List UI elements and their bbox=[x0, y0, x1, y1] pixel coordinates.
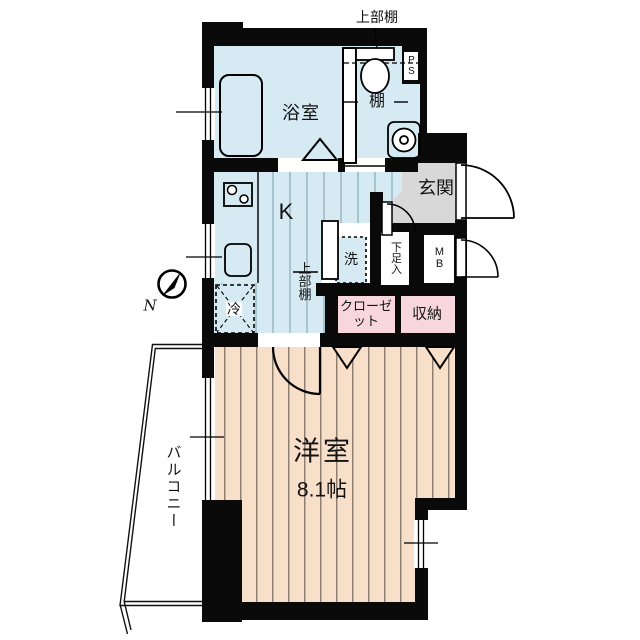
storage-label: 収納 bbox=[412, 307, 442, 322]
balcony-label: バルコニー bbox=[166, 445, 181, 530]
compass-icon bbox=[159, 271, 186, 298]
meter-box-label: MB bbox=[434, 246, 445, 270]
fridge-label: 冷 bbox=[226, 302, 242, 316]
toilet-partition bbox=[343, 48, 356, 163]
hall-door-leaf bbox=[382, 202, 392, 235]
upper-shelf-label: 上部棚 bbox=[356, 10, 398, 24]
washroom-partition bbox=[322, 221, 338, 279]
room-door-opening bbox=[258, 333, 320, 347]
pipe-space-label: PS bbox=[406, 55, 416, 77]
meter-box-door-leaf bbox=[456, 238, 466, 277]
shoe-cabinet-label: 下足入 bbox=[390, 242, 401, 275]
western-room-label: 洋室 bbox=[293, 439, 353, 466]
entrance-door-leaf bbox=[456, 163, 466, 220]
entrance-label: 玄関 bbox=[418, 179, 454, 197]
bathroom-label: 浴室 bbox=[282, 104, 320, 122]
floorplan-drawing bbox=[0, 0, 640, 640]
washer-label: 洗 bbox=[344, 252, 358, 266]
balcony-outline bbox=[120, 345, 203, 635]
toilet-bowl bbox=[361, 59, 389, 93]
kitchen-upper-shelf-label: 上部棚 bbox=[298, 262, 311, 301]
western-room-size-label: 8.1帖 bbox=[297, 480, 347, 501]
compass-north-label: N bbox=[143, 299, 156, 314]
entrance-door-swing bbox=[461, 165, 514, 218]
shelf-label: 棚 bbox=[369, 94, 385, 110]
closet-label: クローゼット bbox=[337, 299, 395, 328]
kitchen-label: K bbox=[279, 201, 294, 223]
floorplan: 上部棚 浴室 棚 PS 玄関 K 上部棚 洗 冷 下足入 MB クローゼット 収… bbox=[0, 0, 640, 640]
